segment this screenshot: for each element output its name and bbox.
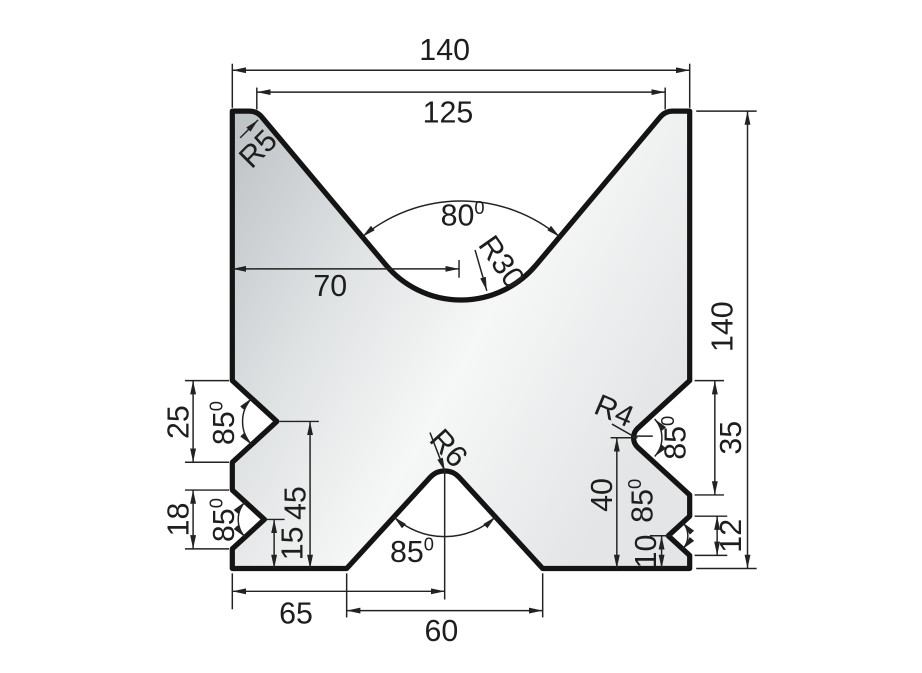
dim-label-top-width: 140	[419, 33, 470, 67]
dim-label-top-v-center-offset: 70	[313, 269, 347, 303]
dim-label-left-upper-notch-height: 45	[278, 486, 312, 520]
dim-label-right-upper-notch-height: 40	[585, 478, 619, 512]
dim-label-overall-height: 140	[705, 301, 739, 352]
dim-label-bottom-v-opening: 60	[424, 614, 458, 648]
dim-label-bottom-v-center-offset: 65	[279, 597, 313, 631]
dim-label-top-v-opening: 125	[423, 96, 474, 130]
dim-label-left-upper-notch-opening: 25	[162, 405, 196, 439]
die-cross-section-drawing: 140 125 140 70 25 18 45 15	[0, 0, 922, 673]
dim-label-right-upper-notch-opening: 35	[714, 421, 748, 455]
dim-label-right-lower-notch-height: 10	[629, 535, 663, 569]
dim-label-left-lower-notch-height: 15	[275, 526, 309, 560]
drawing-page: 140 125 140 70 25 18 45 15	[0, 0, 922, 673]
dim-label-right-lower-notch-opening: 12	[714, 519, 748, 553]
dim-label-left-lower-notch-opening: 18	[162, 503, 196, 537]
